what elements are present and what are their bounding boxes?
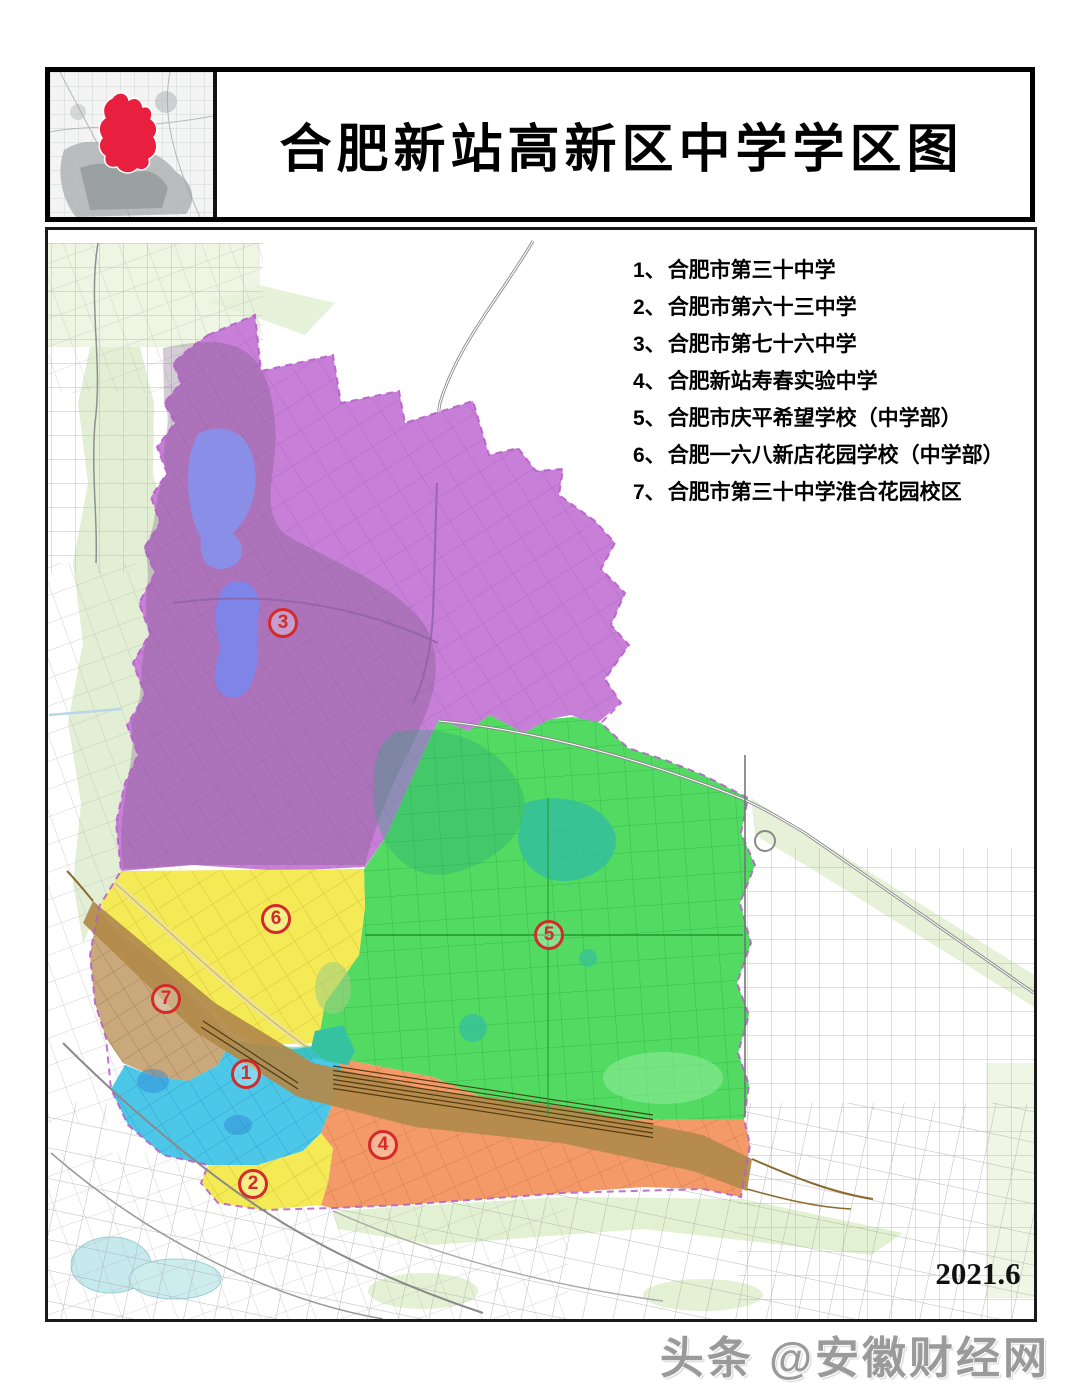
marsh bbox=[603, 1052, 723, 1104]
locator-inset-svg bbox=[50, 72, 213, 217]
legend-num: 3、 bbox=[633, 333, 666, 356]
marker-school-1: 1 bbox=[231, 1059, 261, 1089]
watermark: 头条 @安徽财经网 bbox=[660, 1322, 1050, 1386]
legend-item-7: 7、合肥市第三十中学淮合花园校区 bbox=[633, 474, 1004, 511]
legend-school-name: 合肥市第六十三中学 bbox=[668, 296, 857, 319]
marker-school-7: 7 bbox=[151, 984, 181, 1014]
locator-inset-map bbox=[50, 72, 217, 217]
legend-item-4: 4、合肥新站寿春实验中学 bbox=[633, 363, 1004, 400]
legend-item-2: 2、合肥市第六十三中学 bbox=[633, 289, 1004, 326]
legend-num: 1、 bbox=[633, 259, 666, 282]
legend-num: 6、 bbox=[633, 444, 666, 467]
legend-school-name: 合肥一六八新店花园学校（中学部） bbox=[668, 444, 1004, 467]
legend-school-name: 合肥市第三十中学 bbox=[668, 259, 836, 282]
marker-school-3: 3 bbox=[268, 608, 298, 638]
legend-item-5: 5、合肥市庆平希望学校（中学部） bbox=[633, 400, 1004, 437]
street-grid-east bbox=[738, 848, 1034, 1319]
header: 合肥新站高新区中学学区图 bbox=[45, 67, 1035, 222]
legend-num: 5、 bbox=[633, 407, 666, 430]
legend: 1、合肥市第三十中学 2、合肥市第六十三中学 3、合肥市第七十六中学 4、合肥新… bbox=[633, 252, 1004, 511]
legend-num: 7、 bbox=[633, 481, 666, 504]
legend-item-3: 3、合肥市第七十六中学 bbox=[633, 326, 1004, 363]
legend-school-name: 合肥市第三十中学淮合花园校区 bbox=[668, 481, 962, 504]
pond bbox=[224, 1115, 252, 1135]
pond bbox=[137, 1069, 169, 1093]
pond bbox=[579, 949, 597, 967]
marker-school-5: 5 bbox=[534, 920, 564, 950]
pond bbox=[459, 1014, 487, 1042]
legend-num: 4、 bbox=[633, 370, 666, 393]
marker-school-6: 6 bbox=[261, 904, 291, 934]
legend-num: 2、 bbox=[633, 296, 666, 319]
legend-item-6: 6、合肥一六八新店花园学校（中学部） bbox=[633, 437, 1004, 474]
district-map: 1、合肥市第三十中学 2、合肥市第六十三中学 3、合肥市第七十六中学 4、合肥新… bbox=[45, 227, 1037, 1322]
legend-item-1: 1、合肥市第三十中学 bbox=[633, 252, 1004, 289]
marker-school-4: 4 bbox=[368, 1130, 398, 1160]
legend-school-name: 合肥市第七十六中学 bbox=[668, 333, 857, 356]
page: 合肥新站高新区中学学区图 bbox=[0, 0, 1080, 1388]
park-patch bbox=[315, 962, 351, 1014]
map-date: 2021.6 bbox=[893, 1256, 1037, 1292]
marker-school-2: 2 bbox=[238, 1169, 268, 1199]
legend-school-name: 合肥市庆平希望学校（中学部） bbox=[668, 407, 962, 430]
legend-school-name: 合肥新站寿春实验中学 bbox=[668, 370, 878, 393]
page-title: 合肥新站高新区中学学区图 bbox=[279, 107, 963, 182]
